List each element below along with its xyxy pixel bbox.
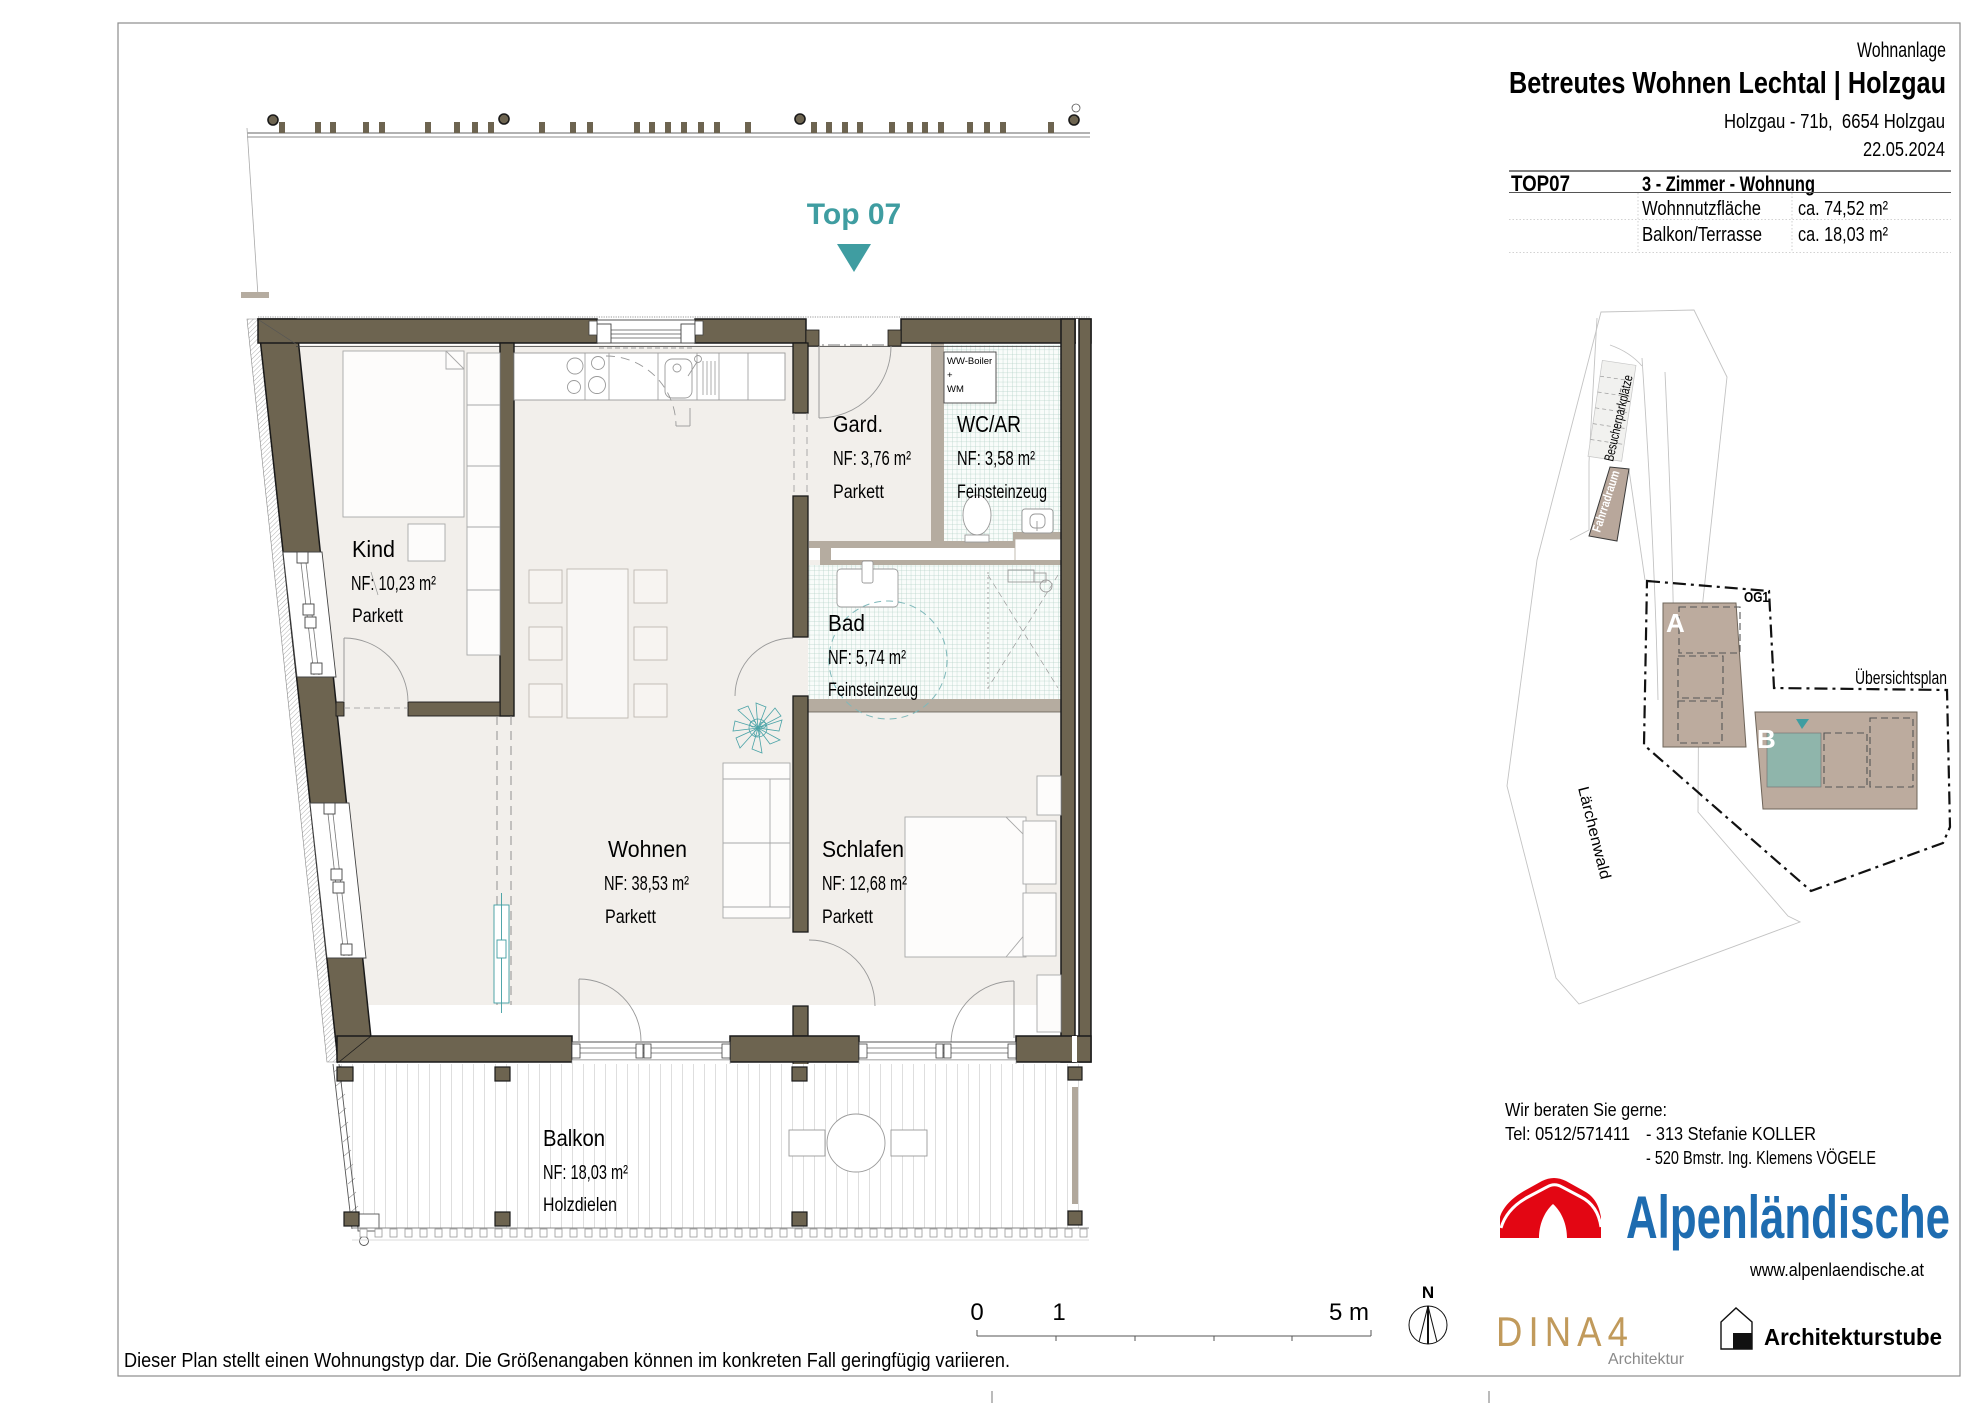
svg-text:Holzgau - 71b, 6654 Holzgau: Holzgau - 71b, 6654 Holzgau bbox=[1724, 110, 1945, 133]
svg-text:B: B bbox=[1757, 724, 1776, 754]
svg-text:Wohnen: Wohnen bbox=[608, 836, 687, 862]
svg-text:Holzdielen: Holzdielen bbox=[543, 1195, 617, 1216]
svg-text:Tel: 0512/571411: Tel: 0512/571411 bbox=[1505, 1124, 1630, 1144]
svg-text:NF: 10,23 m²: NF: 10,23 m² bbox=[351, 573, 436, 595]
svg-text:Bad: Bad bbox=[828, 610, 865, 636]
svg-text:NF: 3,58 m²: NF: 3,58 m² bbox=[957, 448, 1035, 470]
svg-text:22.05.2024: 22.05.2024 bbox=[1863, 138, 1945, 161]
svg-text:Balkon: Balkon bbox=[543, 1125, 605, 1151]
svg-text:NF: 3,76 m²: NF: 3,76 m² bbox=[833, 448, 911, 470]
svg-text:Balkon/Terrasse: Balkon/Terrasse bbox=[1642, 223, 1762, 246]
svg-text:Feinsteinzeug: Feinsteinzeug bbox=[957, 482, 1047, 503]
svg-text:Top 07: Top 07 bbox=[807, 198, 901, 231]
svg-text:1: 1 bbox=[1052, 1299, 1065, 1326]
svg-text:Übersichtsplan: Übersichtsplan bbox=[1855, 668, 1947, 688]
svg-text:WW-Boiler: WW-Boiler bbox=[947, 356, 992, 367]
svg-text:Feinsteinzeug: Feinsteinzeug bbox=[828, 680, 918, 701]
svg-text:Wohnanlage: Wohnanlage bbox=[1857, 39, 1946, 62]
svg-text:WC/AR: WC/AR bbox=[957, 411, 1021, 437]
svg-text:Kind: Kind bbox=[352, 536, 395, 562]
svg-text:0: 0 bbox=[970, 1299, 983, 1326]
svg-text:Gard.: Gard. bbox=[833, 411, 883, 437]
svg-text:WM: WM bbox=[947, 384, 964, 395]
svg-text:Architektur: Architektur bbox=[1608, 1351, 1685, 1368]
svg-text:www.alpenlaendische.at: www.alpenlaendische.at bbox=[1749, 1260, 1924, 1280]
svg-text:Schlafen: Schlafen bbox=[822, 836, 904, 862]
svg-text:NF: 5,74 m²: NF: 5,74 m² bbox=[828, 647, 906, 669]
svg-text:DINA4: DINA4 bbox=[1496, 1308, 1634, 1355]
svg-text:NF: 38,53 m²: NF: 38,53 m² bbox=[604, 873, 689, 895]
svg-text:Parkett: Parkett bbox=[822, 907, 874, 928]
svg-text:- 520 Bmstr. Ing. Klemens VÖGE: - 520 Bmstr. Ing. Klemens VÖGELE bbox=[1646, 1148, 1876, 1168]
svg-text:5 m: 5 m bbox=[1329, 1299, 1369, 1326]
svg-text:Parkett: Parkett bbox=[833, 482, 885, 503]
svg-text:ca. 18,03 m²: ca. 18,03 m² bbox=[1798, 223, 1888, 246]
svg-text:Alpenländische: Alpenländische bbox=[1626, 1184, 1950, 1251]
svg-text:+: + bbox=[947, 370, 953, 381]
svg-text:NF: 12,68 m²: NF: 12,68 m² bbox=[822, 873, 907, 895]
svg-text:NF: 18,03 m²: NF: 18,03 m² bbox=[543, 1162, 628, 1184]
svg-text:OG1: OG1 bbox=[1744, 589, 1769, 606]
svg-text:N: N bbox=[1422, 1283, 1434, 1302]
svg-text:Betreutes Wohnen Lechtal | Hol: Betreutes Wohnen Lechtal | Holzgau bbox=[1509, 65, 1946, 100]
svg-text:Parkett: Parkett bbox=[605, 907, 657, 928]
svg-text:- 313 Stefanie KOLLER: - 313 Stefanie KOLLER bbox=[1646, 1124, 1816, 1144]
svg-text:Parkett: Parkett bbox=[352, 606, 404, 627]
svg-text:ca. 74,52 m²: ca. 74,52 m² bbox=[1798, 197, 1888, 220]
svg-text:Wohnnutzfläche: Wohnnutzfläche bbox=[1642, 197, 1761, 220]
svg-text:Architekturstube: Architekturstube bbox=[1764, 1324, 1942, 1350]
svg-text:Dieser Plan stellt einen Wohnu: Dieser Plan stellt einen Wohnungstyp dar… bbox=[124, 1350, 1010, 1372]
svg-text:A: A bbox=[1666, 608, 1685, 638]
svg-text:Wir beraten Sie gerne:: Wir beraten Sie gerne: bbox=[1505, 1100, 1667, 1120]
